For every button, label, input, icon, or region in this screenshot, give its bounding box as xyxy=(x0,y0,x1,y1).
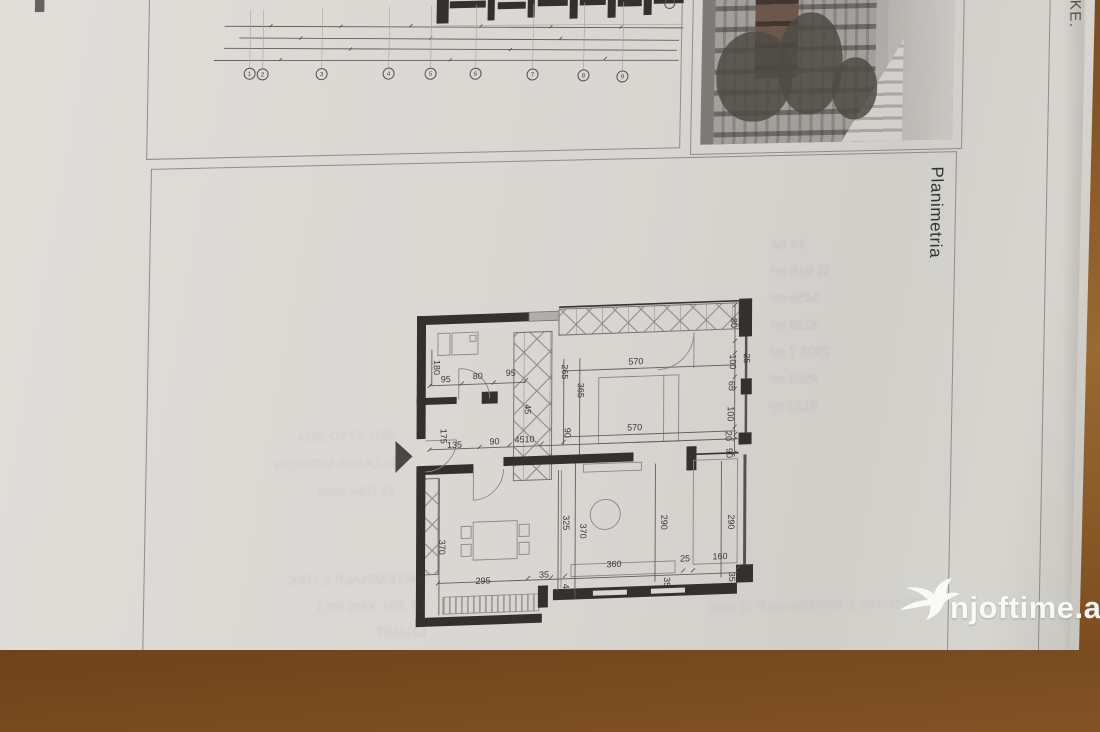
page-border-line xyxy=(1038,0,1052,667)
dimension-label: 80 xyxy=(473,371,483,381)
dimension-label: 25 xyxy=(742,353,752,363)
door-lintel xyxy=(529,311,559,321)
page-number: 21 xyxy=(17,0,116,54)
plan-box: Planimetria xyxy=(141,151,957,729)
entrance-arrow-icon xyxy=(395,440,412,473)
svg-text:6: 6 xyxy=(474,72,478,78)
watermark-text: njoftime.al xyxy=(950,590,1100,626)
top-drawing-box: 123456789 xyxy=(146,0,683,160)
section-drawing: 123456789 xyxy=(147,0,684,161)
dimension-label: 45 xyxy=(523,404,533,414)
plan-box-label: Planimetria xyxy=(925,166,947,258)
balcony-decking xyxy=(443,594,539,614)
svg-text:7: 7 xyxy=(531,72,535,78)
dimension-label: 100 xyxy=(726,406,736,421)
dimension-label: 95 xyxy=(441,374,451,384)
dimension-label: 290 xyxy=(659,515,669,530)
dimension-label: 100 xyxy=(728,354,738,369)
watermark: njoftime.al xyxy=(898,574,1098,636)
dimension-label: 95 xyxy=(506,368,516,378)
dimension-label: 265 xyxy=(560,364,570,379)
svg-text:2: 2 xyxy=(261,72,265,78)
dimension-label: 290 xyxy=(726,514,736,529)
dimension-label: 570 xyxy=(627,422,642,433)
dimension-label: 325 xyxy=(561,515,571,530)
dimension-label: 360 xyxy=(607,559,622,570)
svg-text:3: 3 xyxy=(320,72,324,78)
dimension-label: 25 xyxy=(680,553,690,563)
dimension-label: 65 xyxy=(727,381,737,391)
floor-plan: 1809580952653655705708010025651002090175… xyxy=(393,291,776,641)
plan-strip-walls xyxy=(436,0,684,24)
dimension-label: 90 xyxy=(724,448,734,458)
svg-text:8: 8 xyxy=(582,73,586,79)
dimension-label: 20 xyxy=(724,431,734,441)
paper-sheet: 21 xyxy=(0,0,1100,650)
building-photo xyxy=(700,0,955,145)
dimension-label: 135 xyxy=(447,440,462,451)
dimension-label: 90 xyxy=(563,428,573,438)
dimension-label: 570 xyxy=(628,356,643,367)
dimension-label: 35 xyxy=(727,572,737,582)
dimension-label: 90 xyxy=(490,436,500,446)
building-photo-box xyxy=(690,0,965,155)
dimension-label: 365 xyxy=(576,383,586,398)
svg-text:1: 1 xyxy=(248,72,252,78)
svg-text:9: 9 xyxy=(621,74,625,80)
dimension-label: 370 xyxy=(437,540,447,555)
svg-text:5: 5 xyxy=(429,72,433,78)
dimension-label: 35 xyxy=(539,569,549,579)
dimension-label: 180 xyxy=(432,360,442,375)
dimension-label: 160 xyxy=(713,551,728,562)
dimension-label: 295 xyxy=(475,576,490,587)
dimension-label: 45 xyxy=(561,584,571,594)
dimension-label: 4510 xyxy=(515,434,535,445)
page-content: 21 xyxy=(0,0,1100,662)
dimension-label: 370 xyxy=(578,524,588,539)
dimension-label: 80 xyxy=(729,318,739,328)
dimension-label: 35 xyxy=(662,577,672,587)
svg-text:4: 4 xyxy=(387,72,391,78)
